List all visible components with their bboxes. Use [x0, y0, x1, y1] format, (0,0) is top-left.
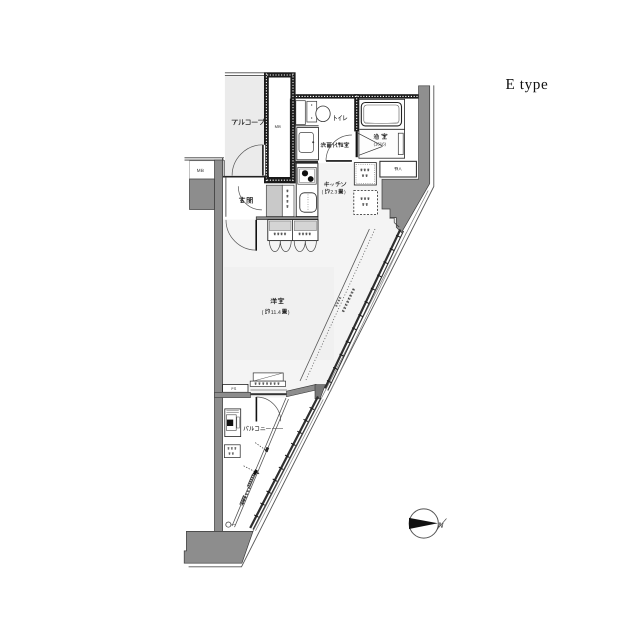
svg-text:11.4: 11.4: [271, 310, 281, 316]
svg-text:FS: FS: [231, 387, 236, 391]
svg-text:): ): [288, 310, 290, 316]
svg-text:E type: E type: [506, 76, 549, 93]
svg-text:2.3: 2.3: [330, 190, 337, 196]
svg-text:MB: MB: [275, 124, 282, 129]
svg-text:(: (: [262, 310, 264, 316]
svg-text:MB: MB: [197, 168, 205, 173]
